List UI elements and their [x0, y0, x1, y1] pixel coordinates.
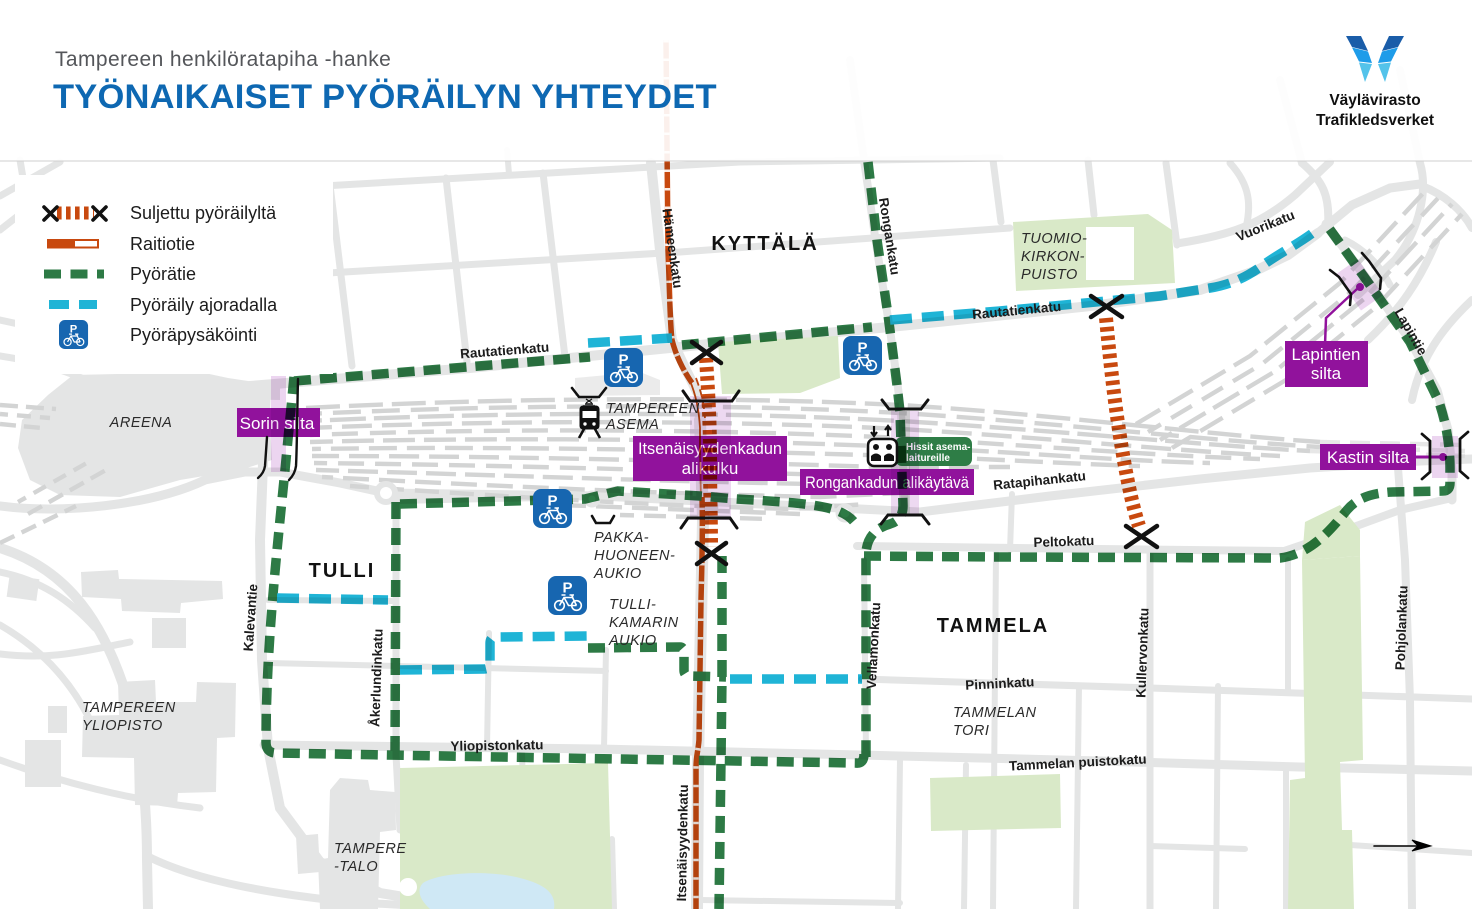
svg-text:Pyöräpysäköinti: Pyöräpysäköinti [130, 325, 257, 345]
svg-text:TULLI-: TULLI- [609, 597, 656, 613]
svg-text:TAMPEREEN: TAMPEREEN [606, 401, 700, 417]
svg-text:Lapintien: Lapintien [1291, 345, 1360, 364]
svg-text:Pohjolankatu: Pohjolankatu [1393, 585, 1411, 670]
svg-text:Itsenäisyydenkatu: Itsenäisyydenkatu [674, 784, 691, 901]
svg-text:PAKKA-: PAKKA- [594, 530, 649, 546]
svg-text:silta: silta [1311, 364, 1342, 383]
svg-text:TYÖNAIKAISET PYÖRÄILYN YHTEYDE: TYÖNAIKAISET PYÖRÄILYN YHTEYDET [53, 77, 717, 116]
svg-text:AREENA: AREENA [109, 415, 173, 431]
svg-text:KYTTÄLÄ: KYTTÄLÄ [711, 232, 818, 255]
svg-text:Pyöräily ajoradalla: Pyöräily ajoradalla [130, 295, 278, 315]
svg-text:TAMMELAN: TAMMELAN [953, 705, 1037, 721]
svg-text:Yliopistonkatu: Yliopistonkatu [450, 737, 543, 754]
svg-text:KAMARIN: KAMARIN [609, 615, 679, 631]
svg-text:Raitiotie: Raitiotie [130, 234, 195, 254]
svg-text:YLIOPISTO: YLIOPISTO [82, 718, 163, 734]
svg-text:AUKIO: AUKIO [593, 566, 642, 582]
svg-text:Väylävirasto: Väylävirasto [1329, 92, 1420, 109]
svg-text:-TALO: -TALO [334, 859, 378, 875]
svg-text:Kastin silta: Kastin silta [1327, 448, 1410, 467]
svg-text:Suljettu pyöräilyltä: Suljettu pyöräilyltä [130, 203, 277, 223]
svg-text:TUOMIO-: TUOMIO- [1021, 231, 1087, 247]
svg-text:Rongankadun alikäytävä: Rongankadun alikäytävä [805, 473, 969, 492]
svg-text:Peltokatu: Peltokatu [1033, 533, 1094, 550]
svg-text:PUISTO: PUISTO [1021, 267, 1078, 283]
svg-text:AUKIO: AUKIO [608, 633, 657, 649]
svg-text:Kullervonkatu: Kullervonkatu [1133, 608, 1151, 698]
svg-text:Tampereen henkilöratapiha -han: Tampereen henkilöratapiha -hanke [55, 48, 391, 71]
svg-text:ASEMA: ASEMA [605, 417, 659, 433]
svg-text:KIRKON-: KIRKON- [1021, 249, 1085, 265]
svg-text:Pyörätie: Pyörätie [130, 264, 196, 284]
svg-text:Trafikledsverket: Trafikledsverket [1316, 112, 1434, 129]
svg-text:TULLI: TULLI [309, 560, 376, 582]
svg-text:TAMPEREEN: TAMPEREEN [82, 700, 176, 716]
svg-text:HUONEEN-: HUONEEN- [594, 548, 675, 564]
svg-text:TAMPERE: TAMPERE [334, 841, 407, 857]
svg-text:TORI: TORI [953, 723, 989, 739]
svg-text:TAMMELA: TAMMELA [937, 615, 1050, 637]
